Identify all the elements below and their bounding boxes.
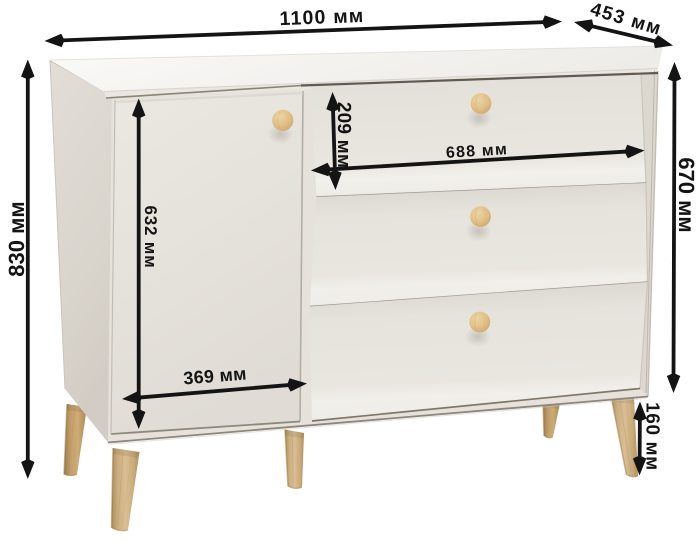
svg-text:160 мм: 160 мм <box>642 402 663 471</box>
svg-text:632 мм: 632 мм <box>141 205 160 268</box>
svg-text:1100 мм: 1100 мм <box>279 5 365 30</box>
svg-text:209 мм: 209 мм <box>333 102 354 168</box>
svg-text:830 мм: 830 мм <box>4 201 29 276</box>
svg-text:670 мм: 670 мм <box>674 157 699 232</box>
